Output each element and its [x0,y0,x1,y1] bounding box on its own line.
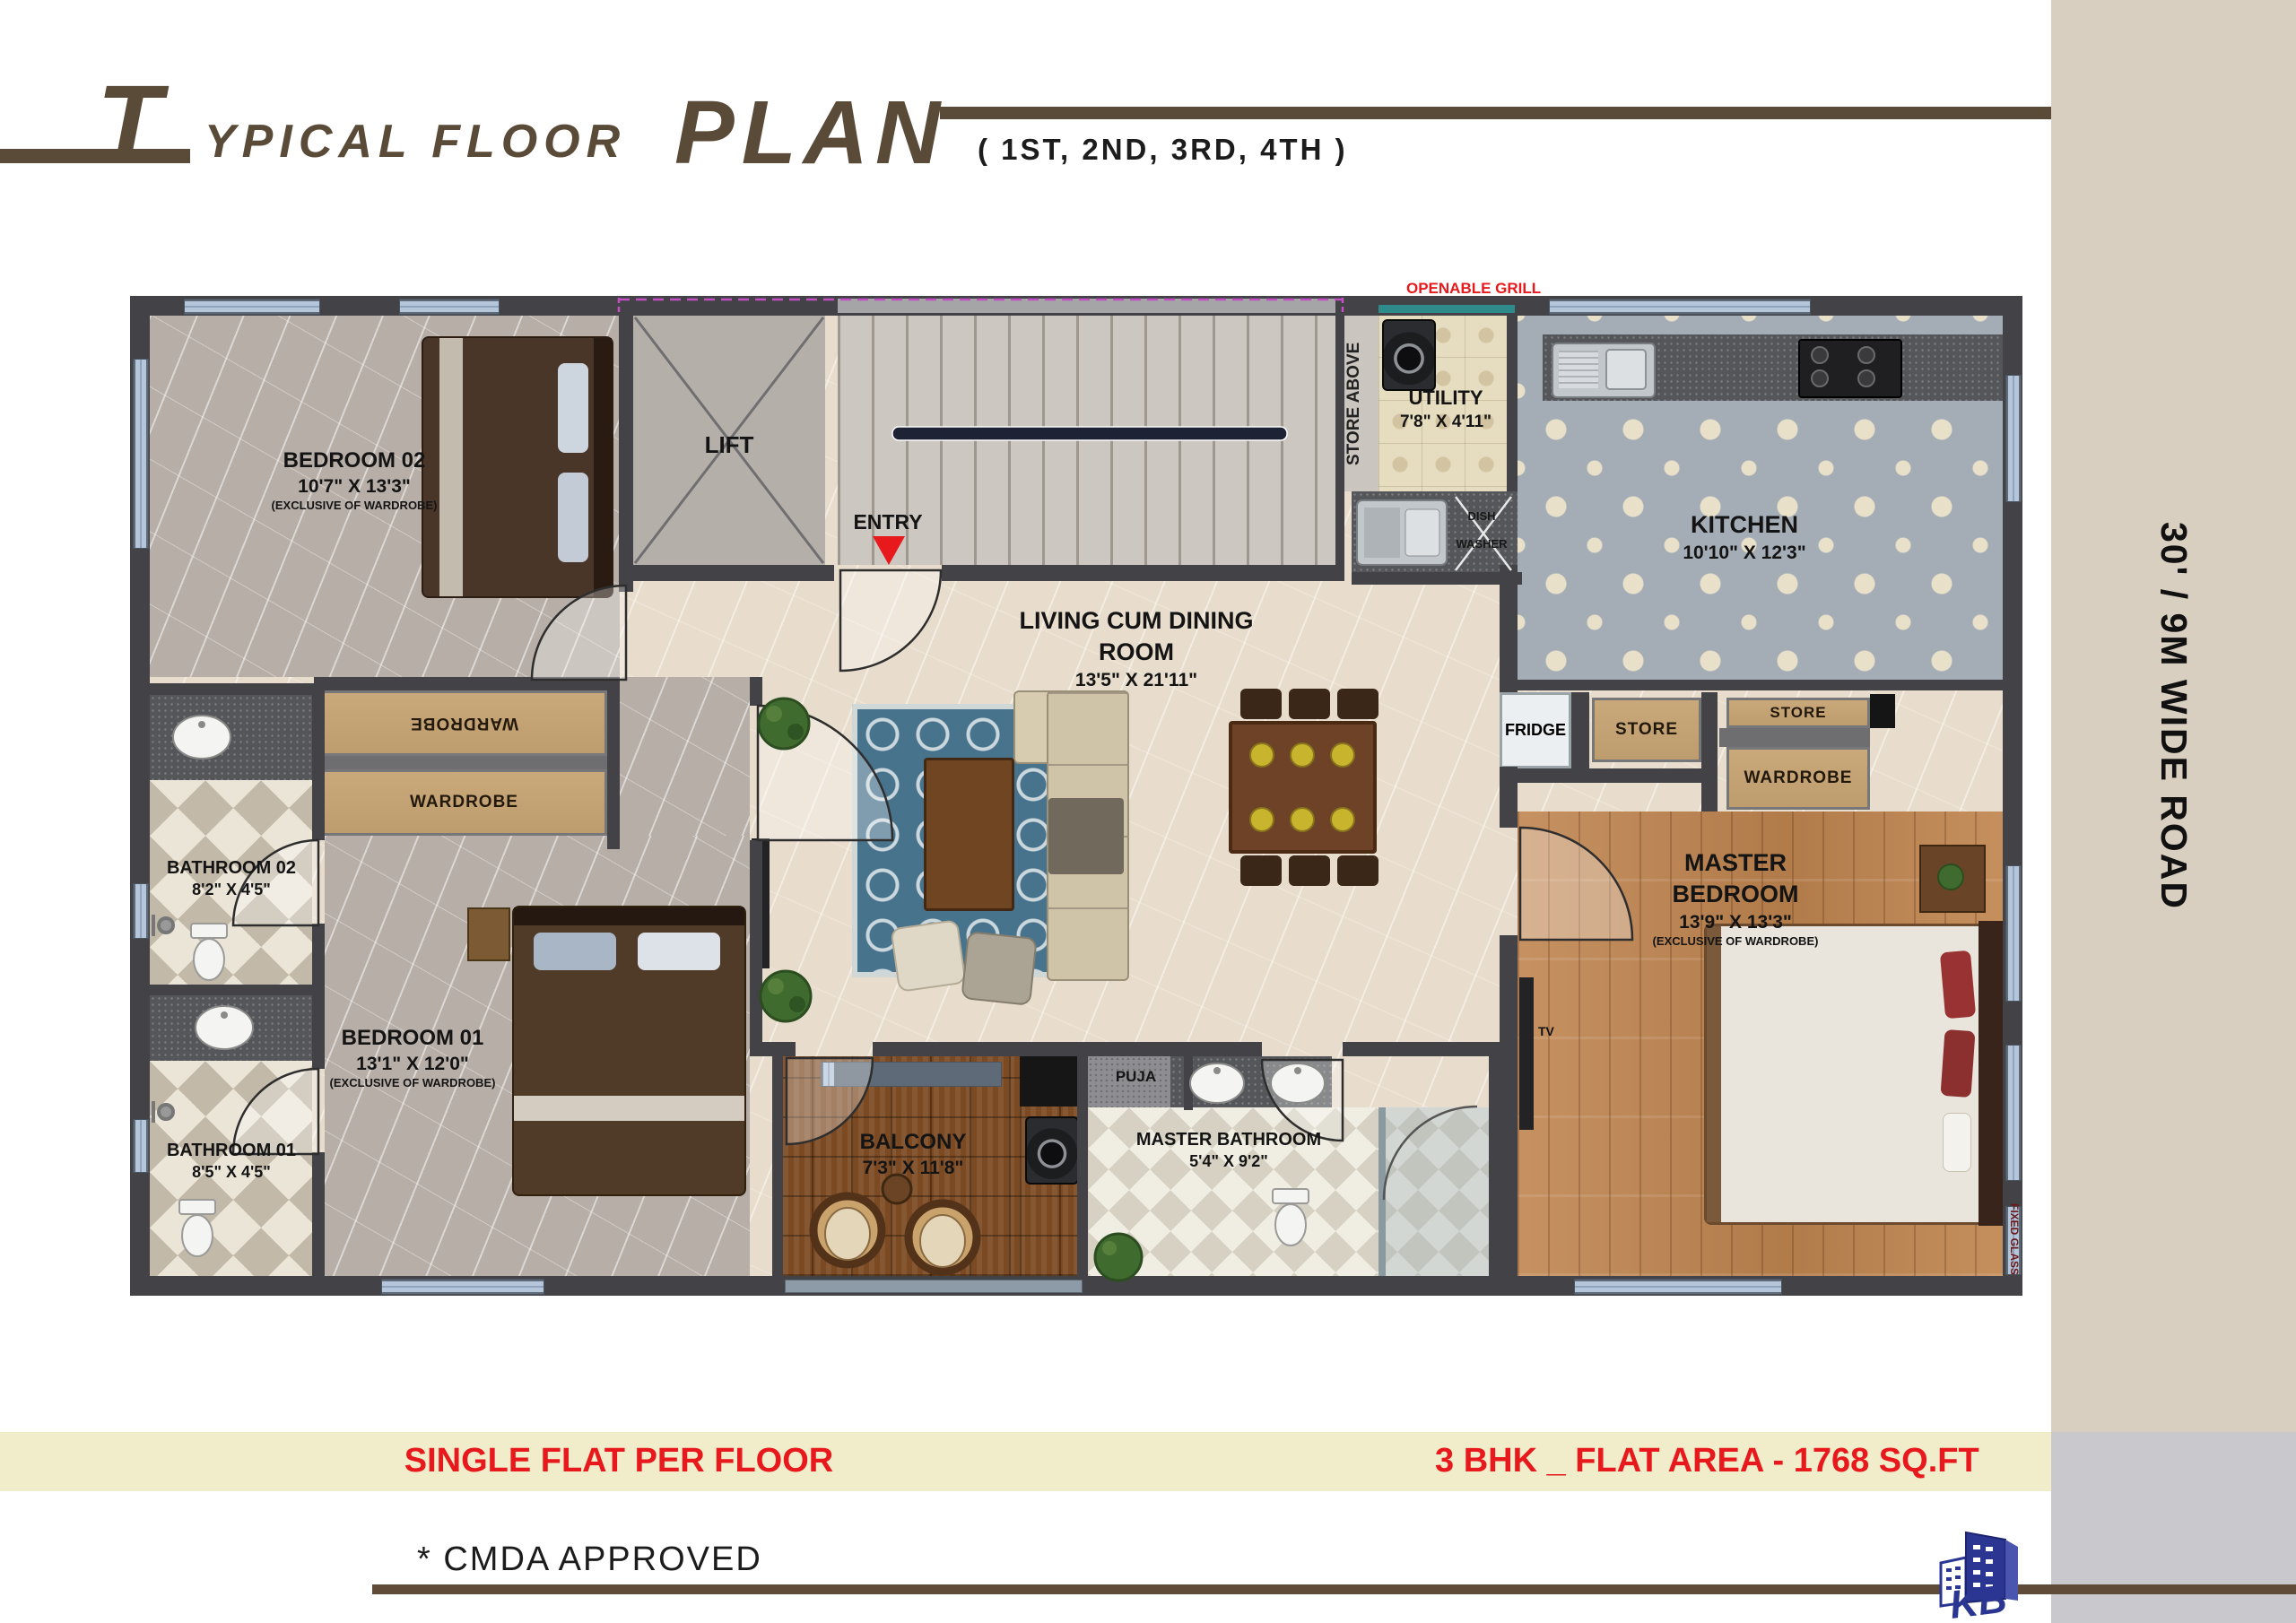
building-icon: KB [1928,1520,2063,1623]
label-store-above: STORE ABOVE [1344,323,1377,484]
title-rule-left [0,149,190,163]
logo-text: KB [1947,1577,2009,1623]
shower-icons [153,915,173,1123]
floor-plan-page: T YPICAL FLOOR PLAN ( 1ST, 2ND, 3RD, 4TH… [0,0,2296,1623]
label-fixed-glass: FIXED GLASS [2005,1203,2021,1275]
label-openable-grill: OPENABLE GRILL [1406,280,1586,298]
footer-flat-area: 3 BHK _ FLAT AREA - 1768 SQ.FT [1435,1442,1901,1480]
title-rule-right [940,107,2051,119]
road-label: 30' / 9M WIDE ROAD [2152,522,2195,910]
label-entry: ENTRY [834,509,942,536]
shower-door-arc [1384,1107,1477,1200]
plant-icons [759,699,1963,1280]
label-dish-washer: DISH WASHER [1448,502,1515,558]
label-bathroom02: BATHROOM 02 8'2" X 4'5" [153,856,309,900]
floor-plan: WARDROBE WARDROBE FRIDGE STORE STORE WAR… [130,296,2022,1296]
page-title-initial: T [97,70,161,176]
footer-flat-per-floor: SINGLE FLAT PER FLOOR [350,1442,888,1480]
dining-plates [1250,743,1354,831]
page-subtitle: ( 1ST, 2ND, 3RD, 4TH ) [978,133,1348,167]
builder-logo: KB [1928,1520,2063,1623]
road-band: 30' / 9M WIDE ROAD [2051,0,2296,1432]
balcony-chairs [813,1175,977,1271]
stove-burners-icon [1812,347,1874,386]
road-band-lower [2051,1432,2296,1623]
stair-handrail [892,427,1287,440]
label-bedroom01: BEDROOM 01 13'1" X 12'0" (EXCLUSIVE OF W… [291,1024,534,1091]
label-utility: UTILITY 7'8" X 4'11" [1378,386,1513,433]
label-balcony: BALCONY 7'3" X 11'8" [801,1128,1025,1180]
openable-grill-line [1378,305,1515,313]
label-master-bathroom: MASTER BATHROOM 5'4" X 9'2" [1094,1128,1363,1172]
footer-approval: * CMDA APPROVED [417,1541,762,1579]
page-title-plan: PLAN [674,88,947,178]
label-kitchen: KITCHEN 10'10" X 12'3" [1610,509,1879,565]
label-bedroom02: BEDROOM 02 10'7" X 13'3" (EXCLUSIVE OF W… [233,447,475,514]
label-bathroom01: BATHROOM 01 8'5" X 4'5" [153,1139,309,1183]
entry-arrow-icon [873,536,905,565]
page-title-rest: YPICAL FLOOR [204,115,626,169]
label-master-bedroom: MASTER BEDROOM 13'9" X 13'3" (EXCLUSIVE … [1637,847,1834,950]
label-living: LIVING CUM DINING ROOM 13'5" X 21'11" [988,605,1284,692]
label-lift: LIFT [633,430,825,461]
label-puja: PUJA [1088,1067,1184,1087]
